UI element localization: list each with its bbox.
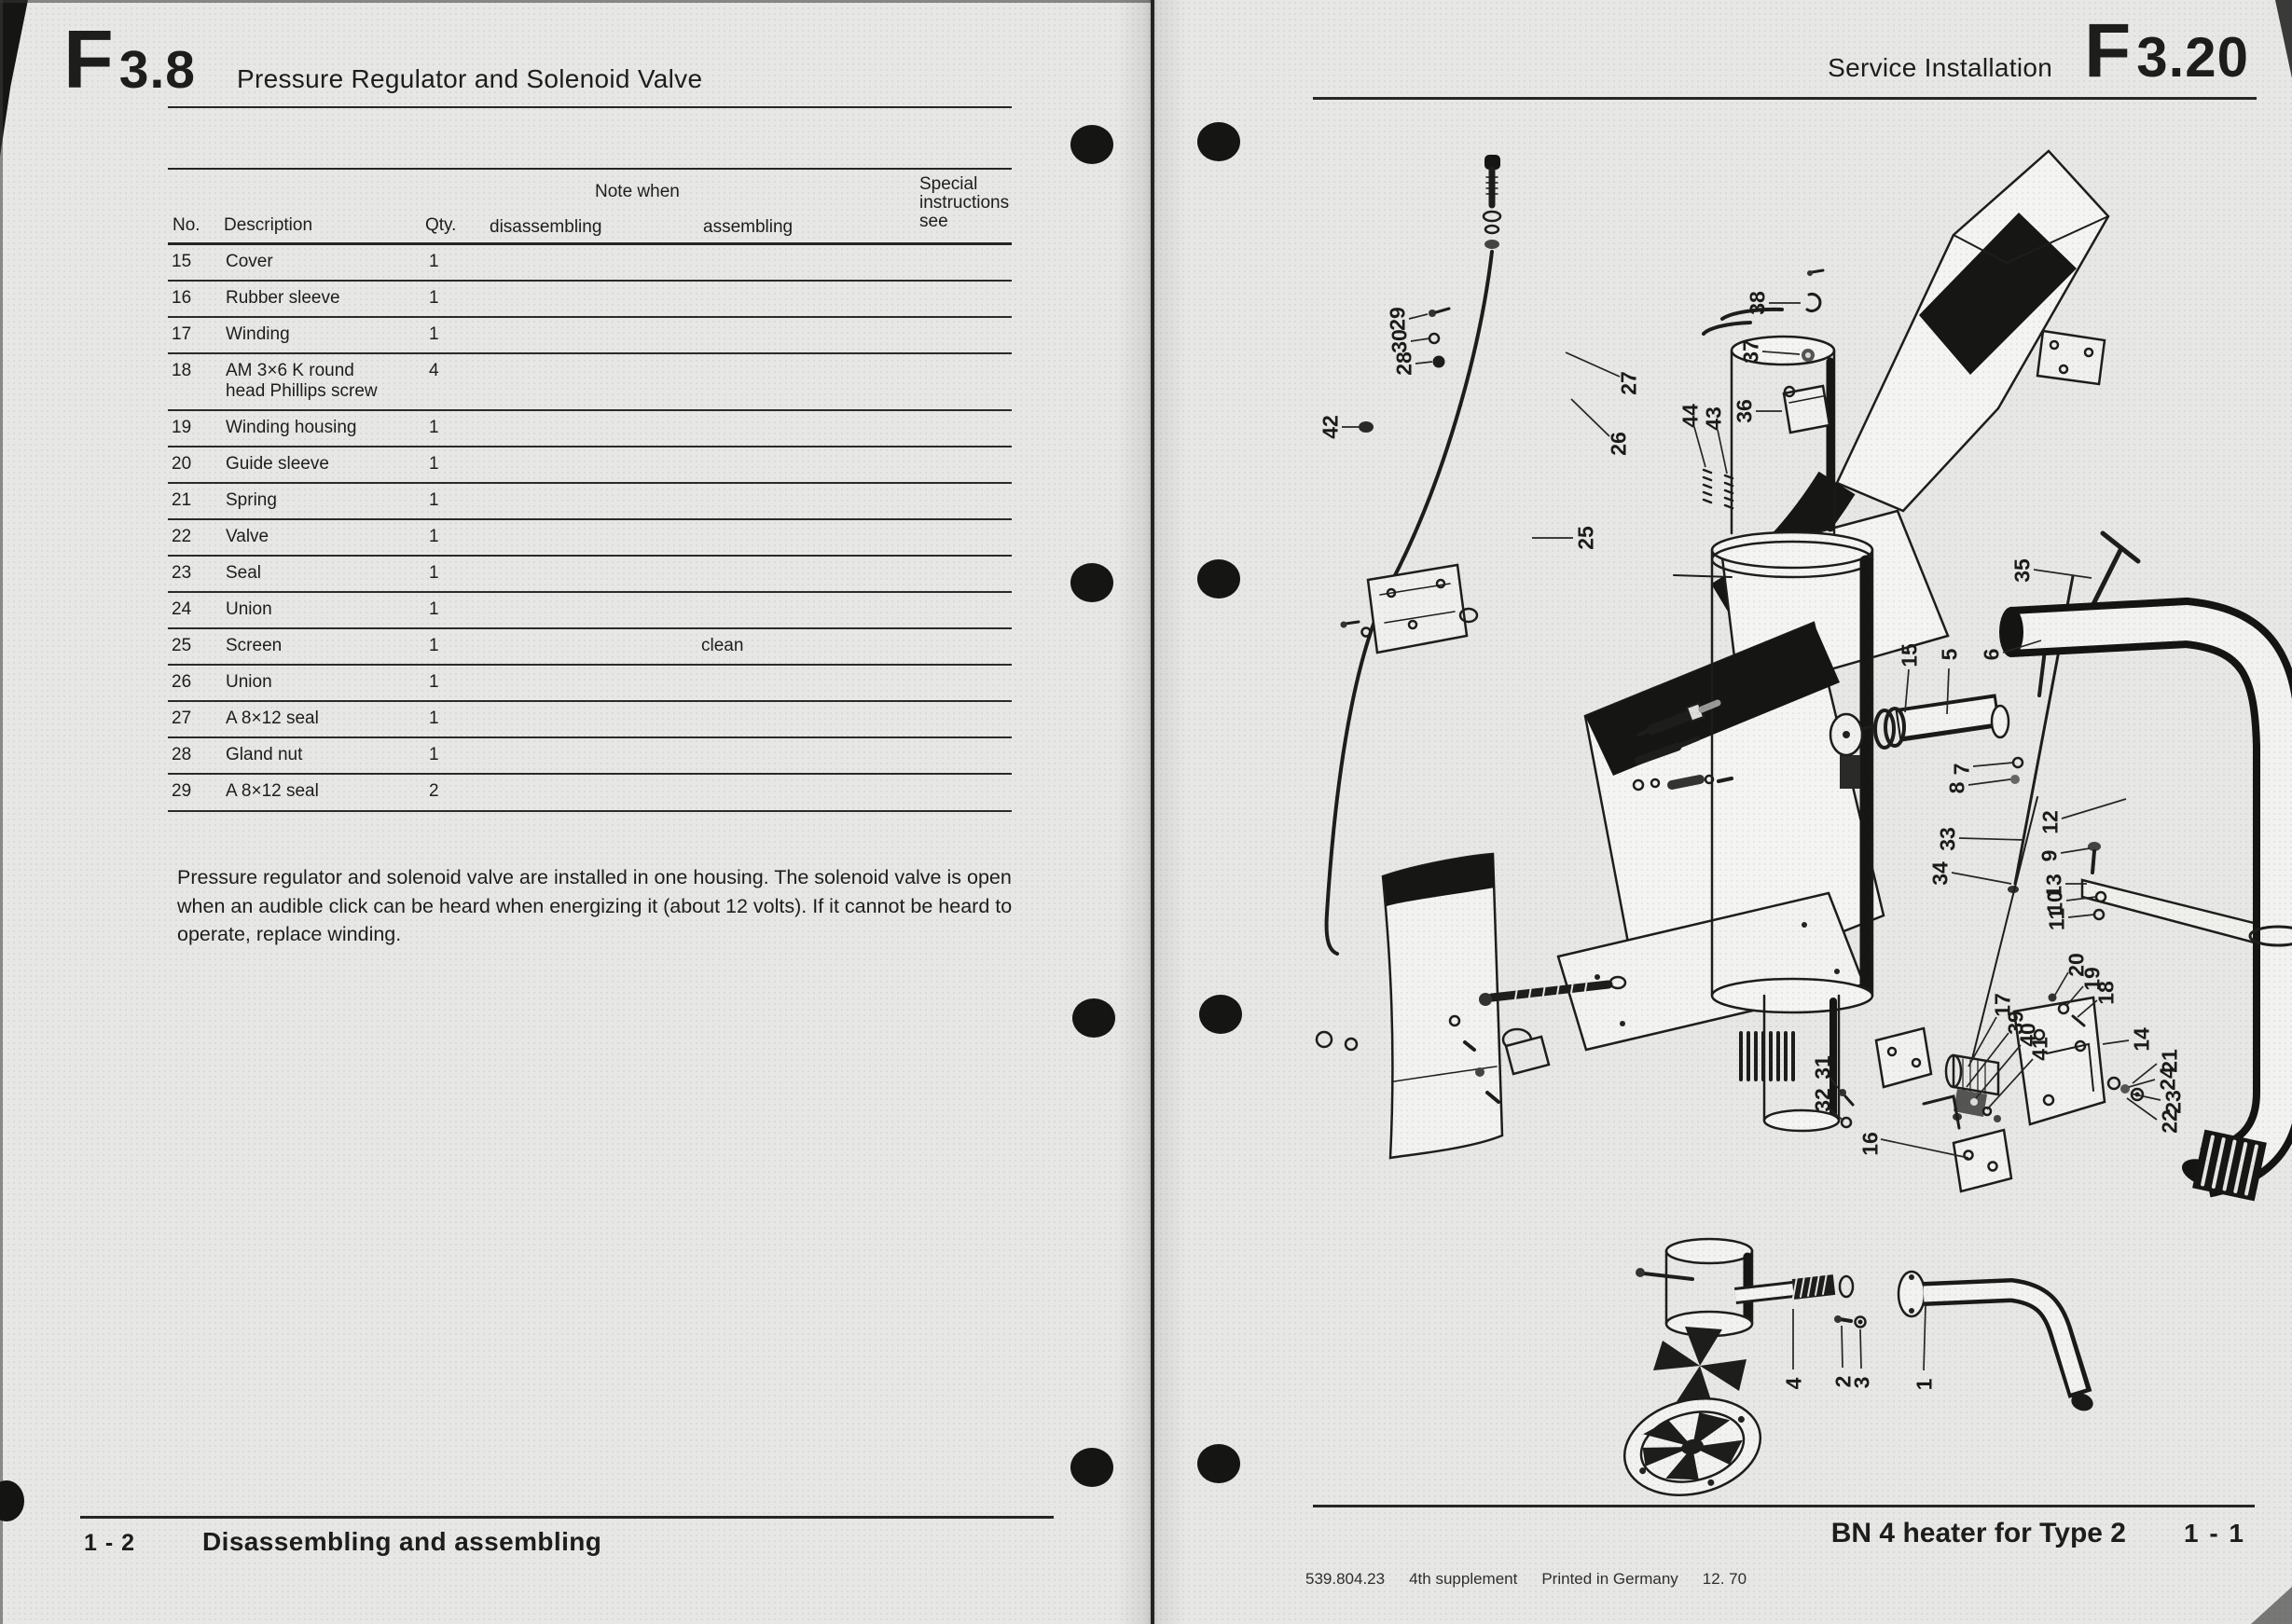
cell-dis: [483, 490, 697, 511]
cell-asm: [697, 418, 917, 438]
callout-number-7: 7: [1949, 764, 1973, 776]
section-number: 3.8: [119, 44, 196, 97]
cell-sp: [917, 361, 1012, 402]
imprint-printed: Printed in Germany: [1541, 1570, 1678, 1589]
cell-dis: [483, 361, 697, 402]
table-row: 17Winding1: [168, 318, 1012, 354]
right-page-header: Service Installation F 3.20: [1828, 13, 2249, 89]
hole-punch: [1070, 1448, 1113, 1487]
part-springs: [1704, 470, 1733, 508]
cell-desc: Gland nut: [222, 745, 425, 765]
header-rule: [168, 106, 1012, 108]
callout-number-8: 8: [1944, 781, 1968, 793]
part-screw-set: [1429, 309, 1449, 368]
cell-dis: [483, 454, 697, 475]
cell-dis: [483, 781, 697, 802]
footer-title-right: BN 4 heater for Type 2: [1831, 1518, 2126, 1549]
table-row: 15Cover1: [168, 245, 1012, 282]
cell-sp: [917, 563, 1012, 584]
cell-qty: 1: [425, 527, 483, 547]
table-row: 29A 8×12 seal2: [168, 775, 1012, 811]
cell-asm: [697, 599, 917, 620]
callout-leader-44: [1694, 427, 1705, 467]
cell-desc: Spring: [222, 490, 425, 511]
callout-leader-26: [1571, 399, 1609, 436]
cell-asm: [697, 527, 917, 547]
callout-number-44: 44: [1678, 404, 1702, 428]
cell-qty: 4: [425, 361, 483, 402]
callout-number-29: 29: [1385, 307, 1409, 331]
cell-desc: AM 3×6 K round head Phillips screw: [222, 361, 425, 402]
callout-leader-14: [2103, 1040, 2129, 1044]
callout-number-13: 13: [2041, 874, 2065, 898]
callout-number-3: 3: [1849, 1377, 1873, 1389]
hole-punch: [1197, 122, 1240, 161]
callout-number-37: 37: [1738, 339, 1762, 364]
cell-desc: Union: [222, 672, 425, 693]
cell-no: 21: [168, 490, 222, 511]
cell-no: 28: [168, 745, 222, 765]
callout-number-1: 1: [1912, 1378, 1936, 1390]
callout-number-12: 12: [2037, 810, 2062, 834]
scan-corner-top-right: [2275, 0, 2292, 78]
table-row: 24Union1: [168, 593, 1012, 629]
callout-number-22: 22: [2157, 1109, 2181, 1134]
cell-no: 16: [168, 288, 222, 309]
parts-table-rows: 15Cover116Rubber sleeve117Winding118AM 3…: [168, 245, 1012, 812]
part-screws-31-32: [1839, 1089, 1853, 1127]
cell-dis: [483, 252, 697, 272]
callout-leader-8: [1968, 779, 2010, 785]
cell-dis: [483, 418, 697, 438]
cell-desc: Winding: [222, 324, 425, 345]
part-shroud-panel: [1383, 854, 1502, 1158]
scan-dot-bottom-left: [0, 1480, 24, 1521]
callout-leader-34: [1952, 873, 2011, 884]
callout-number-35: 35: [2009, 558, 2034, 583]
cell-desc: Rubber sleeve: [222, 288, 425, 309]
callout-number-38: 38: [1745, 291, 1769, 315]
callout-number-9: 9: [2037, 850, 2061, 862]
cell-desc: Screen: [222, 636, 425, 656]
scan-edge-top: [0, 0, 1151, 3]
callout-number-20: 20: [2064, 953, 2088, 977]
cell-sp: [917, 672, 1012, 693]
hole-punch: [1072, 998, 1115, 1038]
hole-punch: [1197, 559, 1240, 599]
imprint-code: 539.804.23: [1305, 1570, 1385, 1589]
imprint-supplement: 4th supplement: [1409, 1570, 1517, 1589]
section-letter-right: F: [2084, 13, 2129, 89]
scan-corner-bottom-right: [2251, 1587, 2292, 1624]
page-number-left: 1 - 2: [84, 1530, 135, 1557]
cell-qty: 1: [425, 636, 483, 656]
cell-asm: [697, 709, 917, 729]
cell-sp: [917, 781, 1012, 802]
cell-asm: [697, 672, 917, 693]
cell-dis: [483, 563, 697, 584]
col-no: No.: [173, 216, 200, 235]
cell-desc: Cover: [222, 252, 425, 272]
cell-qty: 1: [425, 709, 483, 729]
part-washer-cluster: [2108, 1078, 2143, 1100]
cell-desc: Guide sleeve: [222, 454, 425, 475]
cell-no: 15: [168, 252, 222, 272]
cell-qty: 1: [425, 672, 483, 693]
cell-asm: [697, 563, 917, 584]
cell-no: 19: [168, 418, 222, 438]
callout-number-4: 4: [1781, 1377, 1805, 1389]
callout-number-28: 28: [1391, 351, 1415, 376]
callout-number-25: 25: [1573, 526, 1597, 550]
col-qty: Qty.: [425, 216, 456, 235]
callout-number-26: 26: [1606, 432, 1630, 456]
cell-sp: [917, 636, 1012, 656]
cell-qty: 1: [425, 490, 483, 511]
cell-asm: [697, 324, 917, 345]
callout-leader-33: [1959, 838, 2024, 840]
hole-punch: [1199, 995, 1242, 1034]
cell-sp: [917, 527, 1012, 547]
cell-sp: [917, 252, 1012, 272]
table-row: 18AM 3×6 K round head Phillips screw4: [168, 354, 1012, 411]
callout-leader-43: [1718, 430, 1727, 474]
page-number-right: 1 - 1: [2184, 1519, 2245, 1548]
callout-leader-7: [1973, 763, 2013, 766]
cell-asm: [697, 745, 917, 765]
cell-qty: 1: [425, 252, 483, 272]
table-row: 28Gland nut1: [168, 738, 1012, 775]
callout-leader-1: [1924, 1305, 1926, 1370]
cell-no: 25: [168, 636, 222, 656]
callout-number-30: 30: [1387, 329, 1411, 353]
table-row: 22Valve1: [168, 520, 1012, 557]
cell-no: 24: [168, 599, 222, 620]
cell-qty: 1: [425, 599, 483, 620]
cell-no: 26: [168, 672, 222, 693]
col-special-instructions: Special instructions see: [919, 175, 1024, 231]
section-letter: F: [63, 19, 112, 101]
footer-rule-left: [80, 1516, 1054, 1519]
callout-leader-9: [2061, 848, 2090, 853]
callout-leader-28: [1415, 362, 1432, 364]
callout-number-27: 27: [1616, 371, 1640, 395]
cell-no: 18: [168, 361, 222, 402]
cell-dis: [483, 745, 697, 765]
callout-number-14: 14: [2129, 1027, 2153, 1052]
callout-leader-35: [2034, 570, 2092, 578]
callout-leader-15: [1905, 669, 1909, 712]
table-row: 26Union1: [168, 666, 1012, 702]
imprint-line: 539.804.23 4th supplement Printed in Ger…: [1305, 1570, 1771, 1589]
exploded-diagram: 1234567891011121314151617181920212423222…: [1301, 112, 2292, 1524]
callout-leader-30: [1411, 338, 1429, 341]
header-rule-right: [1313, 97, 2257, 100]
table-row: 21Spring1: [168, 484, 1012, 520]
scan-corner-mark: [0, 0, 28, 157]
cell-desc: Union: [222, 599, 425, 620]
col-assembling: assembling: [703, 218, 793, 237]
callout-number-31: 31: [1810, 1055, 1834, 1080]
scanned-manual-page: F 3.8 Pressure Regulator and Solenoid Va…: [0, 0, 2292, 1624]
cell-sp: [917, 454, 1012, 475]
table-row: 23Seal1: [168, 557, 1012, 593]
callout-leader-29: [1409, 314, 1428, 319]
cell-desc: A 8×12 seal: [222, 781, 425, 802]
cell-dis: [483, 288, 697, 309]
hole-punch: [1070, 563, 1113, 602]
footer-title-left: Disassembling and assembling: [202, 1527, 601, 1557]
callout-number-34: 34: [1927, 861, 1952, 886]
service-installation-label: Service Installation: [1828, 55, 2052, 81]
cell-desc: A 8×12 seal: [222, 709, 425, 729]
cell-desc: Winding housing: [222, 418, 425, 438]
col-note-when: Note when: [595, 183, 680, 201]
callout-number-32: 32: [1810, 1088, 1834, 1112]
callout-leader-12: [2062, 799, 2126, 819]
cell-sp: [917, 324, 1012, 345]
part-control-cable: [1327, 155, 1500, 954]
cell-asm: [697, 781, 917, 802]
left-page-header: F 3.8 Pressure Regulator and Solenoid Va…: [63, 19, 702, 101]
col-description: Description: [224, 216, 312, 235]
col-disassembling: disassembling: [490, 218, 601, 237]
cell-sp: [917, 418, 1012, 438]
cell-asm: clean: [697, 636, 917, 656]
cell-sp: [917, 288, 1012, 309]
cell-qty: 1: [425, 454, 483, 475]
right-page-footer: BN 4 heater for Type 2 1 - 1: [1313, 1518, 2245, 1549]
table-row: 27A 8×12 seal1: [168, 702, 1012, 738]
cell-qty: 2: [425, 781, 483, 802]
part-valve-block: [1341, 565, 1478, 653]
diagram-parts: [1317, 151, 2292, 1508]
cell-dis: [483, 324, 697, 345]
cell-dis: [483, 599, 697, 620]
cell-dis: [483, 636, 697, 656]
cell-qty: 1: [425, 745, 483, 765]
page-title: Pressure Regulator and Solenoid Valve: [237, 66, 702, 92]
cell-sp: [917, 709, 1012, 729]
cell-dis: [483, 672, 697, 693]
cell-dis: [483, 527, 697, 547]
left-page-footer: 1 - 2 Disassembling and assembling: [84, 1527, 601, 1557]
part-clamp-strip: [2082, 880, 2261, 944]
callout-number-43: 43: [1701, 406, 1725, 431]
callout-number-36: 36: [1732, 399, 1756, 423]
callout-number-24: 24: [2155, 1067, 2179, 1091]
cell-no: 23: [168, 563, 222, 584]
callout-number-11: 11: [2044, 908, 2068, 931]
callout-leader-3: [1860, 1329, 1861, 1369]
section-number-right: 3.20: [2136, 30, 2249, 86]
cell-desc: Seal: [222, 563, 425, 584]
page-gutter: [1151, 0, 1154, 1624]
callout-number-6: 6: [1979, 649, 2003, 661]
cell-no: 29: [168, 781, 222, 802]
cell-sp: [917, 599, 1012, 620]
callout-number-42: 42: [1318, 415, 1342, 439]
imprint-date: 12. 70: [1703, 1570, 1747, 1589]
cell-asm: [697, 490, 917, 511]
callout-leader-27: [1566, 352, 1620, 377]
callout-number-15: 15: [1897, 643, 1921, 667]
note-paragraph: Pressure regulator and solenoid valve ar…: [177, 863, 1026, 949]
part-outlet-elbow: [1830, 706, 2009, 755]
table-row: 25Screen1clean: [168, 629, 1012, 666]
part-burner-fan: [1614, 1239, 1771, 1508]
cell-qty: 1: [425, 563, 483, 584]
callout-number-33: 33: [1935, 827, 1959, 851]
parts-table-header: No. Description Qty. Note when disassemb…: [168, 170, 1012, 245]
table-row: 20Guide sleeve1: [168, 447, 1012, 484]
cell-asm: [697, 454, 917, 475]
cell-qty: 1: [425, 418, 483, 438]
hole-punch: [1197, 1444, 1240, 1483]
cell-no: 17: [168, 324, 222, 345]
callout-number-16: 16: [1857, 1132, 1882, 1156]
scan-edge-left: [0, 0, 3, 1624]
cell-asm: [697, 288, 917, 309]
callout-leader-2: [1842, 1326, 1843, 1368]
cell-no: 22: [168, 527, 222, 547]
callout-leader-11: [2068, 915, 2094, 917]
callout-number-41: 41: [2027, 1037, 2051, 1061]
cell-qty: 1: [425, 324, 483, 345]
callout-number-5: 5: [1937, 648, 1961, 660]
part-bottom-pipe-group: [1735, 1272, 2095, 1414]
table-row: 16Rubber sleeve1: [168, 282, 1012, 318]
cell-asm: [697, 361, 917, 402]
callout-leader-22: [2127, 1098, 2157, 1120]
cell-dis: [483, 709, 697, 729]
parts-table: No. Description Qty. Note when disassemb…: [168, 168, 1012, 812]
table-row: 19Winding housing1: [168, 411, 1012, 447]
cell-sp: [917, 490, 1012, 511]
footer-rule-right: [1313, 1505, 2255, 1507]
cell-asm: [697, 252, 917, 272]
hole-punch: [1070, 125, 1113, 164]
cell-sp: [917, 745, 1012, 765]
cell-desc: Valve: [222, 527, 425, 547]
cell-qty: 1: [425, 288, 483, 309]
cell-no: 20: [168, 454, 222, 475]
cell-no: 27: [168, 709, 222, 729]
